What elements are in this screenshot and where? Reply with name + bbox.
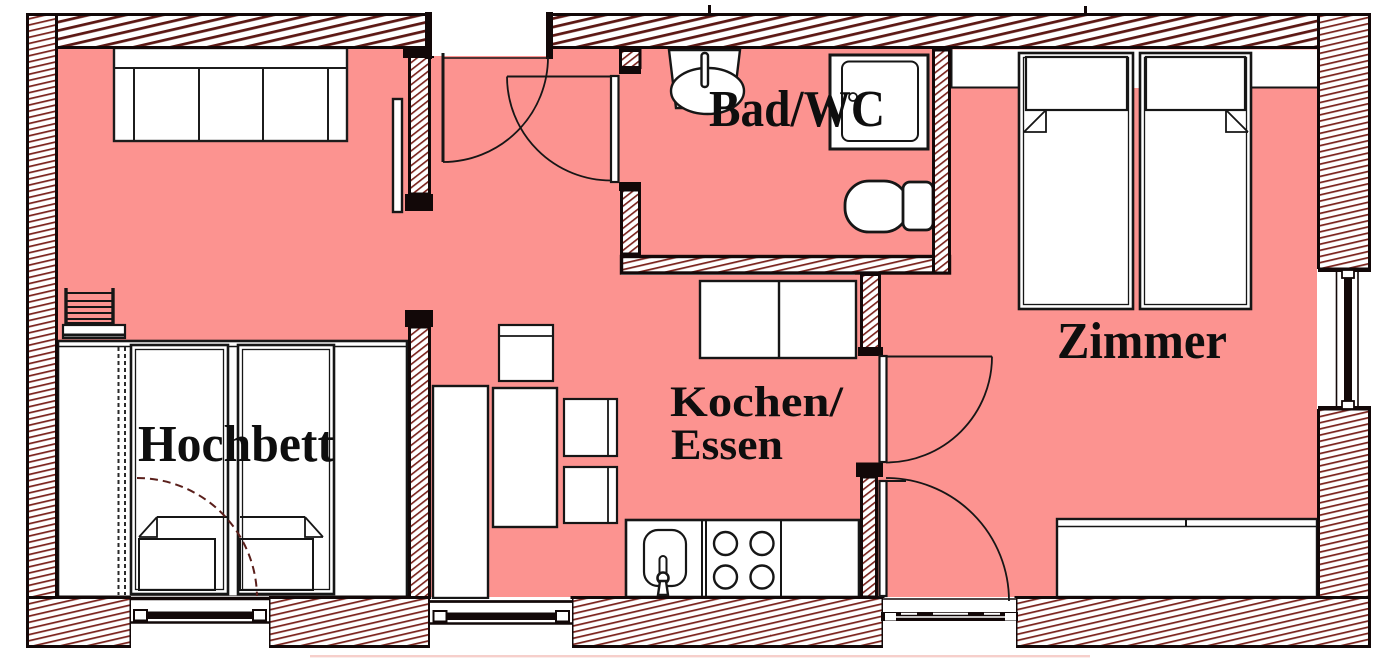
svg-text:Zimmer: Zimmer (1057, 313, 1227, 370)
svg-text:Essen: Essen (671, 422, 783, 469)
svg-text:Bad/WC: Bad/WC (709, 81, 885, 138)
svg-text:Kochen/: Kochen/ (670, 379, 844, 426)
svg-text:Hochbett: Hochbett (138, 416, 335, 473)
